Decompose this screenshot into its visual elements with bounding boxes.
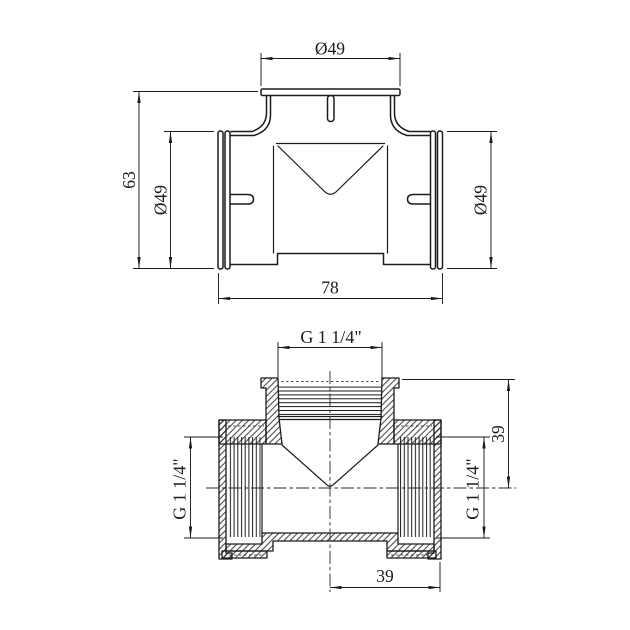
dimension-right-thread: G 1 1/4"	[436, 437, 490, 538]
technical-drawing-canvas: Ø49 63 Ø49 Ø49	[0, 0, 630, 630]
section-view: G 1 1/4" G 1 1/4" 39 G 1 1/4"	[170, 327, 517, 592]
dimension-label-left-thread: G 1 1/4"	[170, 458, 190, 519]
dimension-label-width: 78	[321, 278, 339, 298]
dimension-label-right-offset: 39	[488, 425, 508, 443]
dimension-overall-height: 63	[119, 92, 258, 269]
dimension-label-top-thread: G 1 1/4"	[300, 327, 361, 347]
tee-right-flange-outer-bar	[438, 131, 443, 269]
dimension-label-height: 63	[119, 171, 139, 189]
tee-left-flange-inner-bar	[225, 131, 230, 269]
section-foot-left	[222, 551, 267, 558]
dimension-left-thread: G 1 1/4"	[170, 437, 224, 538]
section-foot-right	[387, 551, 436, 558]
dimension-left-diameter: Ø49	[151, 132, 215, 269]
tee-top-slot	[328, 96, 335, 122]
dimension-label-right-thread: G 1 1/4"	[463, 458, 483, 519]
front-view-dimensions: Ø49 63 Ø49 Ø49	[119, 39, 497, 305]
drawing-page: Ø49 63 Ø49 Ø49	[0, 0, 630, 630]
tee-bottom-profile	[231, 254, 431, 265]
dimension-label-right-diameter: Ø49	[471, 185, 491, 215]
dimension-top-thread: G 1 1/4"	[278, 327, 382, 378]
front-view-outline	[218, 89, 443, 269]
dimension-overall-width: 78	[219, 273, 443, 304]
dimension-label-top-diameter: Ø49	[315, 39, 345, 59]
tee-left-flange-outer-bar	[218, 131, 223, 269]
front-view: Ø49 63 Ø49 Ø49	[119, 39, 497, 305]
tee-left-lug	[231, 195, 254, 205]
tee-funnel-vee	[278, 146, 383, 194]
dimension-label-left-diameter: Ø49	[151, 185, 171, 215]
tee-branch-wall-right-outer	[395, 96, 431, 132]
tee-branch-wall-left-inner	[231, 96, 271, 136]
tee-right-lug	[408, 195, 431, 205]
dimension-right-diameter: Ø49	[447, 132, 497, 269]
dimension-bottom-offset: 39	[330, 562, 440, 592]
right-thread-region	[400, 437, 433, 537]
dimension-top-diameter: Ø49	[261, 39, 400, 87]
tee-top-flange	[261, 89, 400, 96]
tee-right-flange-inner-bar	[431, 131, 436, 269]
dimension-label-bottom-offset: 39	[376, 566, 394, 586]
left-thread-region	[228, 437, 261, 537]
tee-branch-wall-left-outer	[231, 96, 267, 132]
tee-branch-wall-right-inner	[391, 96, 431, 136]
